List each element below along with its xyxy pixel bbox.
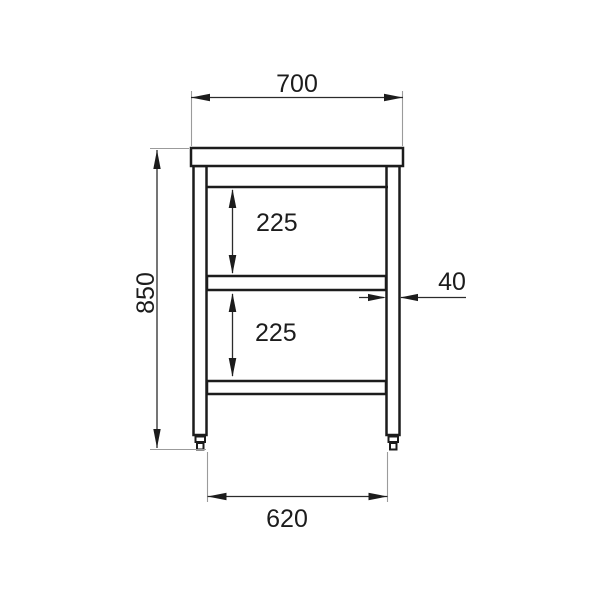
- technical-drawing-canvas: 700 850 225 225: [0, 0, 600, 600]
- arrowhead-up-icon: [229, 189, 237, 208]
- arrowhead-right-icon: [384, 94, 403, 101]
- arrowhead-down-icon: [229, 255, 237, 274]
- middle-shelf: [207, 276, 386, 290]
- upper-shelf-spacing-label: 225: [256, 209, 298, 237]
- left-leg: [194, 166, 207, 435]
- top-width-label: 700: [276, 70, 318, 98]
- arrowhead-left-icon: [191, 94, 210, 101]
- arrowhead-down-icon: [153, 429, 160, 448]
- tabletop: [191, 148, 403, 166]
- arrowhead-up-icon: [153, 150, 160, 169]
- arrowhead-left-icon: [208, 493, 227, 500]
- arrowhead-right-icon: [369, 493, 388, 500]
- right-foot: [389, 437, 399, 450]
- dimension-base-width: 620: [208, 452, 388, 533]
- worktable-drawing: 700 850 225 225: [0, 0, 600, 600]
- left-foot: [196, 437, 206, 450]
- arrowhead-left-icon: [400, 294, 418, 301]
- arrowhead-right-icon: [368, 294, 386, 301]
- base-width-label: 620: [266, 505, 308, 533]
- overall-height-label: 850: [132, 272, 160, 314]
- lower-shelf: [207, 381, 386, 394]
- lower-shelf-spacing-label: 225: [255, 319, 297, 347]
- dimension-lower-shelf-spacing: 225: [229, 293, 297, 377]
- arrowhead-down-icon: [229, 358, 237, 377]
- leg-width-label: 40: [438, 268, 466, 296]
- right-leg: [387, 166, 400, 435]
- dimension-upper-shelf-spacing: 225: [229, 189, 298, 274]
- dimension-top-width: 700: [191, 70, 403, 146]
- arrowhead-up-icon: [229, 293, 237, 312]
